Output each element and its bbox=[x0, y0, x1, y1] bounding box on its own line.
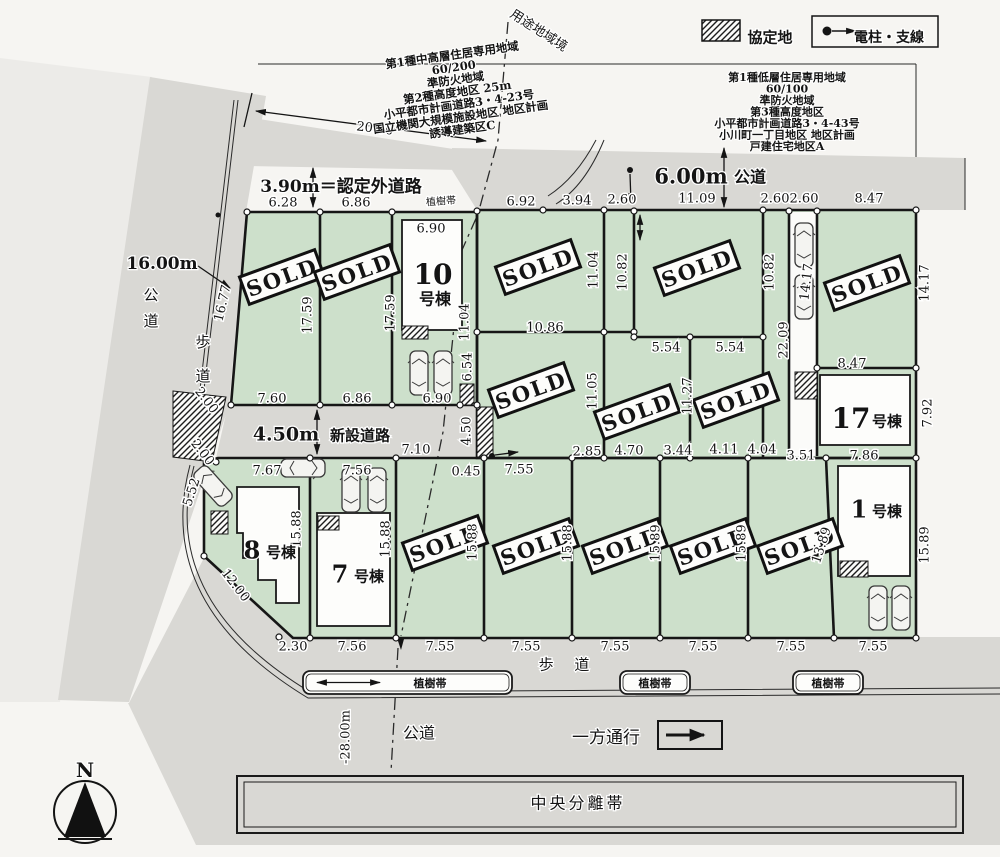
dim-label: 7.10 bbox=[402, 443, 431, 458]
map-label: 号棟 bbox=[872, 412, 903, 430]
annotation-right-line: 戸建住宅地区A bbox=[750, 139, 825, 153]
annotations: 第1種中高層住居専用地域60/200準防火地域第2種高度地区 25m小平都市計画… bbox=[364, 36, 860, 153]
map-label: 3.90m＝認定外道路 bbox=[260, 176, 422, 197]
dim-label: 17.59 bbox=[384, 294, 399, 331]
dim-label: 6.86 bbox=[342, 196, 371, 211]
dim-label: 2.30 bbox=[279, 640, 308, 655]
map-label: 号棟 bbox=[419, 290, 452, 309]
dim-label: 7.55 bbox=[601, 640, 630, 655]
map-label: 8 bbox=[244, 535, 261, 564]
dim-label: 3.44 bbox=[664, 444, 693, 459]
dim-label: 8.47 bbox=[855, 192, 884, 207]
survey-point bbox=[393, 635, 399, 641]
entry-hatch-7 bbox=[318, 516, 339, 530]
pole-icon bbox=[216, 213, 221, 218]
map-label: 10 bbox=[414, 258, 453, 291]
survey-point bbox=[481, 455, 487, 461]
map-label: 7 bbox=[332, 559, 349, 588]
dim-label: 7.55 bbox=[689, 640, 718, 655]
dim-label: 6.54 bbox=[461, 353, 476, 382]
dim-label: 11.05 bbox=[586, 372, 601, 409]
car-icon bbox=[867, 586, 889, 630]
survey-point bbox=[760, 207, 766, 213]
car-icon bbox=[890, 586, 912, 630]
dim-label: 11.04 bbox=[587, 251, 602, 288]
map-label: 1 bbox=[851, 494, 868, 523]
dim-label: 7.55 bbox=[512, 640, 541, 655]
dim-label: 22.09 bbox=[777, 321, 792, 358]
dim-label: 8.47 bbox=[838, 357, 867, 372]
dim-label: 15.89 bbox=[649, 524, 664, 561]
dim-label: 7.92 bbox=[921, 399, 936, 428]
survey-point bbox=[393, 455, 399, 461]
survey-point bbox=[601, 207, 607, 213]
entry-hatch-1 bbox=[840, 561, 868, 577]
building-1 bbox=[838, 466, 910, 576]
map-label: 公道 bbox=[403, 724, 435, 743]
dim-label: 2.60 bbox=[608, 193, 637, 208]
site-plan: 植樹帯植樹帯植樹帯 SOLDSOLDSOLDSOLDSOLDSOLDSOLDSO… bbox=[0, 0, 1000, 857]
survey-point bbox=[913, 455, 919, 461]
dim-label: 3.51 bbox=[787, 449, 816, 464]
dim-label: 7.56 bbox=[343, 464, 372, 479]
map-label: 歩 道 bbox=[539, 655, 598, 673]
survey-point bbox=[307, 455, 313, 461]
dim-label: 10.82 bbox=[616, 253, 631, 290]
car-icon bbox=[432, 351, 454, 395]
survey-point bbox=[823, 455, 829, 461]
annotation-right: 第1種低層住居専用地域60/100準防火地域第3種高度地区小平都市計画道路3・4… bbox=[713, 70, 859, 153]
car-icon bbox=[793, 223, 815, 267]
map-label: N bbox=[76, 758, 94, 782]
dim-label: 2.85 bbox=[573, 445, 602, 460]
survey-point bbox=[631, 208, 637, 214]
map-label: 号棟 bbox=[872, 502, 903, 520]
survey-point bbox=[474, 208, 480, 214]
annotation-left: 第1種中高層住居専用地域60/200準防火地域第2種高度地区 25m小平都市計画… bbox=[364, 36, 551, 149]
site-plan-svg: 植樹帯植樹帯植樹帯 SOLDSOLDSOLDSOLDSOLDSOLDSOLDSO… bbox=[0, 0, 1000, 857]
dim-label: 11.27 bbox=[681, 377, 696, 414]
survey-point bbox=[786, 208, 792, 214]
survey-point bbox=[814, 365, 820, 371]
survey-point bbox=[317, 209, 323, 215]
map-label: 公道 bbox=[734, 168, 766, 187]
dim-label: 11.04 bbox=[458, 303, 473, 340]
map-label: 6.00m bbox=[654, 163, 727, 188]
dim-label: 17.59 bbox=[301, 296, 316, 333]
map-label: 植樹帯 bbox=[426, 193, 457, 208]
dim-label: 15.88 bbox=[290, 510, 305, 547]
dim-label: 6.90 bbox=[423, 392, 452, 407]
map-label: 電柱・支線 bbox=[854, 29, 924, 46]
dim-label: 10.86 bbox=[526, 321, 563, 336]
dim-label: 4.11 bbox=[710, 443, 739, 458]
dim-label: 15.88 bbox=[561, 524, 576, 561]
tree-strip-label: 植樹帯 bbox=[811, 676, 845, 690]
dim-label: 6.28 bbox=[269, 196, 298, 211]
dim-label: 6.90 bbox=[417, 222, 446, 237]
entry-hatch-10 bbox=[402, 326, 428, 339]
dim-label: 7.60 bbox=[258, 392, 287, 407]
agreement-swatch-icon bbox=[702, 20, 740, 41]
survey-point bbox=[474, 329, 480, 335]
survey-point bbox=[601, 455, 607, 461]
map-label: 中央分離帯 bbox=[530, 794, 625, 813]
entry-hatch-17 bbox=[795, 372, 817, 399]
dim-label: 14.17 bbox=[918, 264, 933, 301]
survey-point bbox=[474, 402, 480, 408]
dim-label: 2.60 bbox=[761, 192, 790, 207]
survey-point bbox=[631, 334, 637, 340]
dim-label: 5.54 bbox=[716, 341, 745, 356]
survey-point bbox=[601, 329, 607, 335]
entry-hatch-8 bbox=[211, 511, 228, 534]
survey-point bbox=[317, 402, 323, 408]
dim-label: -28.00m bbox=[339, 710, 354, 764]
survey-point bbox=[389, 209, 395, 215]
north-triangle-icon bbox=[64, 782, 106, 837]
dim-label: 7.67 bbox=[253, 464, 282, 479]
survey-point bbox=[457, 402, 463, 408]
survey-point bbox=[389, 402, 395, 408]
survey-point bbox=[569, 635, 575, 641]
survey-point bbox=[687, 334, 693, 340]
survey-point bbox=[913, 635, 919, 641]
survey-point bbox=[657, 635, 663, 641]
agreement-strip-1 bbox=[460, 384, 474, 405]
survey-point bbox=[745, 635, 751, 641]
map-label: 16.00m bbox=[126, 254, 197, 274]
survey-point bbox=[913, 207, 919, 213]
agreement-strip-2 bbox=[477, 407, 493, 457]
map-label: 協定地 bbox=[747, 28, 792, 46]
survey-point bbox=[831, 635, 837, 641]
dim-label: 7.56 bbox=[338, 640, 367, 655]
north-arrow bbox=[54, 781, 116, 843]
survey-point bbox=[814, 208, 820, 214]
dim-label: 11.09 bbox=[678, 192, 715, 207]
dim-label: 7.55 bbox=[505, 463, 534, 478]
dim-label: 15.88 bbox=[466, 523, 481, 560]
map-label: 一方通行 bbox=[572, 728, 640, 748]
dim-label: 7.86 bbox=[850, 449, 879, 464]
survey-point bbox=[540, 207, 546, 213]
dim-label: 15.89 bbox=[918, 526, 933, 563]
survey-point bbox=[760, 334, 766, 340]
survey-point bbox=[481, 635, 487, 641]
map-label: 号棟 bbox=[354, 567, 385, 585]
tree-strip-label: 植樹帯 bbox=[638, 676, 672, 690]
dim-label: 4.50 bbox=[460, 417, 475, 446]
survey-point bbox=[657, 455, 663, 461]
dim-label: 10.82 bbox=[763, 253, 778, 290]
dim-label: 7.55 bbox=[426, 640, 455, 655]
dim-label: 7.55 bbox=[859, 640, 888, 655]
dim-label: 4.04 bbox=[748, 443, 777, 458]
map-label: 新設道路 bbox=[330, 426, 391, 444]
pole-icon bbox=[489, 453, 495, 459]
survey-point bbox=[201, 553, 207, 559]
dim-label: 0.45 bbox=[452, 465, 481, 480]
car-icon bbox=[408, 351, 430, 395]
dim-label: 2.60 bbox=[790, 192, 819, 207]
car-icon bbox=[281, 457, 325, 479]
dim-label: 6.86 bbox=[343, 392, 372, 407]
survey-point bbox=[228, 402, 234, 408]
dim-label: 3.94 bbox=[563, 194, 592, 209]
map-label: 17 bbox=[832, 402, 871, 435]
pole-icon bbox=[627, 167, 633, 173]
dim-label: 5.54 bbox=[652, 341, 681, 356]
map-label: 号棟 bbox=[266, 543, 297, 561]
dim-label: 6.92 bbox=[507, 195, 536, 210]
pole-legend-icon bbox=[823, 27, 832, 36]
survey-point bbox=[244, 209, 250, 215]
dim-label: 15.89 bbox=[735, 524, 750, 561]
map-label: 4.50m bbox=[253, 424, 319, 446]
dim-label: 15.88 bbox=[379, 520, 394, 557]
survey-point bbox=[913, 365, 919, 371]
dim-label: 4.70 bbox=[615, 444, 644, 459]
tree-strip-label: 植樹帯 bbox=[413, 676, 447, 690]
dim-label: 7.55 bbox=[777, 640, 806, 655]
survey-point bbox=[307, 635, 313, 641]
